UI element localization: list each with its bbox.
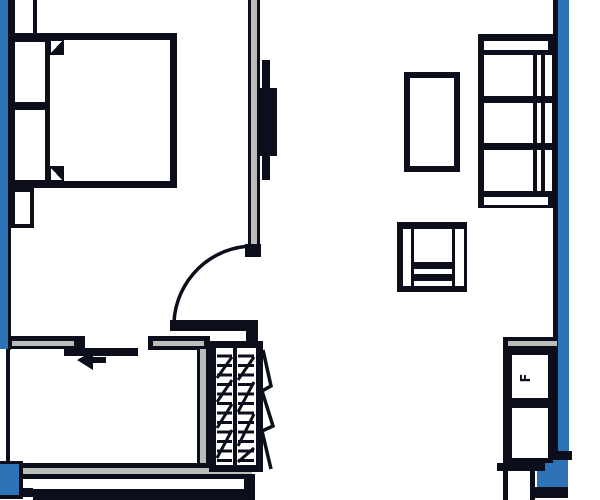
hall-wall-left-line (197, 349, 200, 465)
bed-pillow-bottom (15, 110, 45, 180)
tv-mount (258, 88, 277, 156)
entry-wall-right-core (153, 341, 204, 346)
stair-center-rail (233, 348, 237, 465)
sofa (478, 34, 555, 208)
sofa-seat-3 (484, 150, 533, 191)
sofa-armrest-top (484, 41, 548, 50)
hall-wall-right-line (206, 349, 209, 465)
sofa-back-strip-2b (545, 103, 552, 143)
top-left-wall-niche (11, 0, 37, 35)
partition-left-line (248, 0, 251, 252)
armchair (397, 222, 467, 292)
hall-right-wall (197, 349, 209, 465)
sofa-back-strip-2a (537, 103, 541, 143)
fridge: F (507, 350, 553, 403)
hall-left-wall-line (6, 349, 10, 465)
left-wall-blue-fill (0, 0, 8, 349)
partition-core (251, 0, 257, 252)
kitchen-cabinet (507, 403, 553, 463)
stairs (209, 341, 273, 472)
right-wall-blue-fill (558, 0, 569, 455)
sofa-seat-1 (484, 55, 533, 96)
bed-mattress (50, 40, 170, 181)
cabinet-body (512, 408, 548, 458)
sofa-back-strip-3b (545, 150, 552, 191)
stair-break-line (262, 350, 273, 469)
floor-plan: F (0, 0, 600, 500)
nightstand (11, 188, 34, 228)
coffee-table (404, 72, 460, 172)
nightstand-top (15, 192, 30, 224)
kitchen-divider (497, 463, 545, 471)
entry-door-leaf (64, 348, 138, 356)
bed (8, 33, 177, 188)
armchair-back-line-2 (414, 281, 452, 286)
sofa-back-strip-1a (537, 55, 541, 96)
sofa-seat-2 (484, 103, 533, 143)
floor-plan-canvas: F (0, 0, 600, 500)
kitchen-counter-top-line (503, 337, 557, 341)
right-wall-bottom-cap (535, 487, 568, 498)
armchair-arm-right (455, 229, 464, 286)
entry-wall-left (8, 336, 85, 349)
door-swing-arc (174, 246, 253, 322)
niche-line-1 (11, 0, 15, 35)
sofa-back-strip-1b (545, 55, 552, 96)
armchair-back-line-1 (414, 269, 452, 274)
bottom-outer-wall-band (33, 489, 255, 500)
lower-box-right-line (530, 471, 535, 500)
door-leaf (170, 320, 258, 331)
lower-box (508, 471, 530, 500)
sofa-armrest-bottom (484, 197, 548, 205)
sofa-back-strip-3a (537, 150, 541, 191)
bottom-wall-bottom-line (18, 474, 252, 479)
left-wall-inner-line (8, 0, 11, 350)
entry-wall-right (148, 336, 210, 350)
armchair-arm-left (403, 229, 411, 286)
pier-blue-fill (0, 464, 19, 495)
bed-pillow-top (15, 42, 45, 102)
hall-wall-core (200, 349, 206, 465)
pier-tick (22, 488, 33, 497)
fridge-label: F (519, 374, 534, 383)
coffee-table-top (410, 78, 454, 166)
right-wall-end-cap (550, 451, 572, 460)
left-exterior-wall (0, 0, 11, 465)
armchair-seat (414, 229, 452, 262)
niche-line-2 (33, 0, 37, 35)
entry-wall-left-core (12, 341, 74, 346)
tv-icon (258, 60, 277, 180)
kitchen-counter-core (508, 341, 557, 346)
entry-door (64, 348, 138, 370)
kitchen-counter-bottom-line (503, 346, 557, 350)
